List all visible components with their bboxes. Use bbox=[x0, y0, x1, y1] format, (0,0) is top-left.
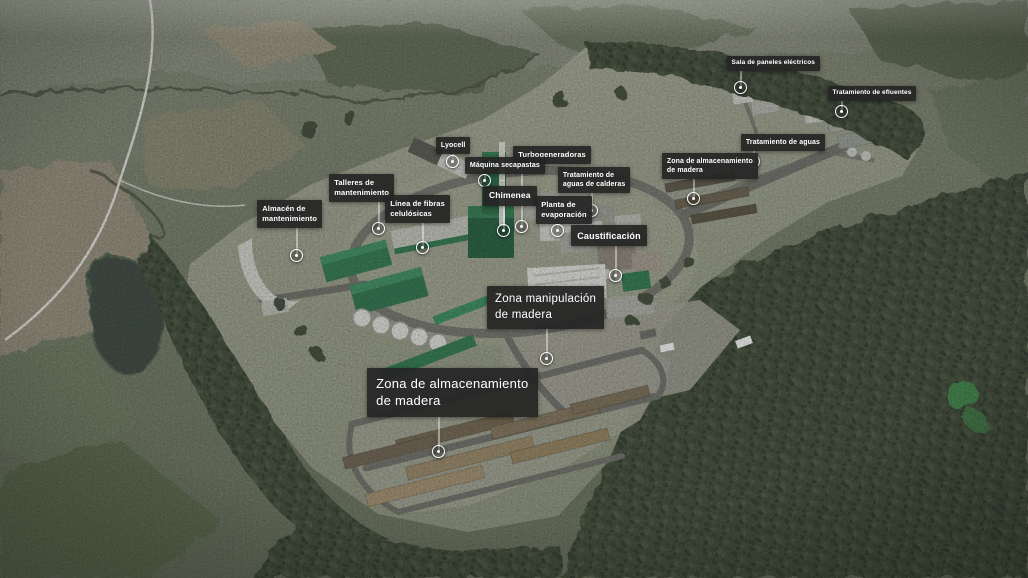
label-caustificacion: Caustificación bbox=[571, 225, 647, 246]
label-zona-almacenamiento-madera-sw: Zona de almacenamientode madera bbox=[367, 368, 538, 417]
label-tratamiento-efluentes: Tratamiento de efluentes bbox=[828, 86, 916, 101]
label-marker-linea-fibras-celulosicas bbox=[416, 241, 429, 254]
label-planta-evaporacion: Planta deevaporación bbox=[536, 196, 592, 224]
label-marker-chimenea bbox=[497, 224, 510, 237]
label-marker-zona-almacenamiento-madera-ne bbox=[687, 192, 700, 205]
label-marker-planta-evaporacion bbox=[551, 224, 564, 237]
label-marker-zona-almacenamiento-madera-sw bbox=[432, 445, 445, 458]
label-zona-almacenamiento-madera-ne: Zona de almacenamientode madera bbox=[662, 153, 758, 179]
label-tratamiento-aguas-calderas: Tratamiento deaguas de calderas bbox=[558, 167, 630, 193]
labels-layer: Sala de paneles eléctricosTratamiento de… bbox=[0, 0, 1028, 578]
label-marker-lyocell bbox=[446, 155, 459, 168]
label-lyocell: Lyocell bbox=[436, 137, 470, 154]
label-marker-talleres-mantenimiento bbox=[372, 222, 385, 235]
label-chimenea: Chimenea bbox=[483, 186, 537, 206]
label-marker-tratamiento-efluentes bbox=[835, 105, 848, 118]
label-zona-manipulacion-madera: Zona manipulaciónde madera bbox=[487, 286, 604, 329]
label-marker-turbogeneradoras bbox=[515, 220, 528, 233]
label-almacen-mantenimiento: Almacén demantenimiento bbox=[257, 200, 322, 228]
label-linea-fibras-celulosicas: Línea de fibrascelulósicas bbox=[385, 195, 450, 223]
label-maquina-secapastas: Máquina secapastas bbox=[465, 157, 545, 174]
label-marker-sala-paneles-electricos bbox=[734, 81, 747, 94]
label-marker-almacen-mantenimiento bbox=[290, 249, 303, 262]
label-marker-caustificacion bbox=[609, 269, 622, 282]
annotated-aerial-view: Sala de paneles eléctricosTratamiento de… bbox=[0, 0, 1028, 578]
label-tratamiento-aguas: Tratamiento de aguas bbox=[741, 134, 825, 151]
label-marker-zona-manipulacion-madera bbox=[540, 352, 553, 365]
label-sala-paneles-electricos: Sala de paneles eléctricos bbox=[727, 56, 820, 71]
